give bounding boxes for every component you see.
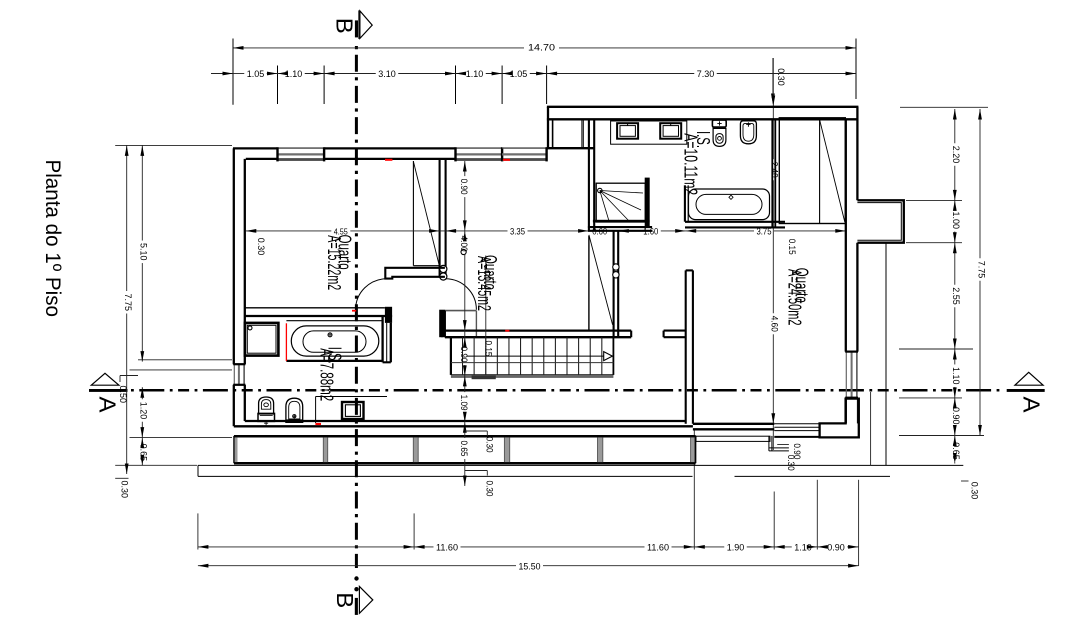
svg-text:0.65: 0.65 [458,441,469,457]
svg-text:1.05: 1.05 [247,69,265,80]
svg-text:11.60: 11.60 [647,543,669,554]
svg-text:A: A [1019,397,1045,414]
svg-text:7.30: 7.30 [697,69,715,80]
svg-text:0.30: 0.30 [485,481,495,497]
svg-text:7.75: 7.75 [975,261,986,279]
svg-text:0.15: 0.15 [787,239,797,255]
svg-text:1.90: 1.90 [727,543,745,554]
svg-text:5.10: 5.10 [138,243,149,260]
svg-text:2.55: 2.55 [950,287,961,305]
svg-text:14.70: 14.70 [528,42,555,53]
svg-text:4.60: 4.60 [769,316,780,332]
svg-text:3.35: 3.35 [510,227,525,238]
svg-text:0.30: 0.30 [775,68,786,86]
svg-text:A: A [95,397,121,414]
svg-text:1.10: 1.10 [950,367,961,385]
svg-text:0.30: 0.30 [969,482,980,500]
svg-text:Planta do 1º Piso: Planta do 1º Piso [41,160,65,318]
svg-text:3.10: 3.10 [378,69,396,80]
svg-text:7.75: 7.75 [122,294,133,312]
svg-text:A=24.50m2: A=24.50m2 [784,269,804,326]
svg-text:0.90: 0.90 [950,407,961,425]
svg-text:0.50: 0.50 [117,385,128,403]
svg-text:2.40: 2.40 [769,162,780,178]
svg-text:B: B [332,592,358,608]
svg-text:15.50: 15.50 [519,561,541,572]
svg-text:1.10: 1.10 [466,69,484,80]
svg-text:0.30: 0.30 [485,437,495,453]
svg-text:1.00: 1.00 [950,212,961,230]
svg-text:0.90: 0.90 [458,347,469,363]
svg-text:1.09: 1.09 [458,395,469,411]
svg-text:0.30: 0.30 [119,481,130,499]
svg-text:A=13.45m2: A=13.45m2 [474,256,494,311]
svg-text:11.60: 11.60 [436,543,458,554]
svg-text:B: B [332,18,358,34]
svg-text:A=10.11m2: A=10.11m2 [681,133,701,195]
svg-text:0.15: 0.15 [484,341,494,357]
svg-text:0.90: 0.90 [827,543,845,554]
svg-text:A=15.22m2: A=15.22m2 [324,235,344,290]
svg-text:1.20: 1.20 [138,402,149,420]
svg-text:2.20: 2.20 [950,146,961,164]
svg-text:0.90: 0.90 [458,179,469,195]
svg-text:0.30: 0.30 [255,238,266,256]
svg-text:0.30: 0.30 [786,455,796,471]
